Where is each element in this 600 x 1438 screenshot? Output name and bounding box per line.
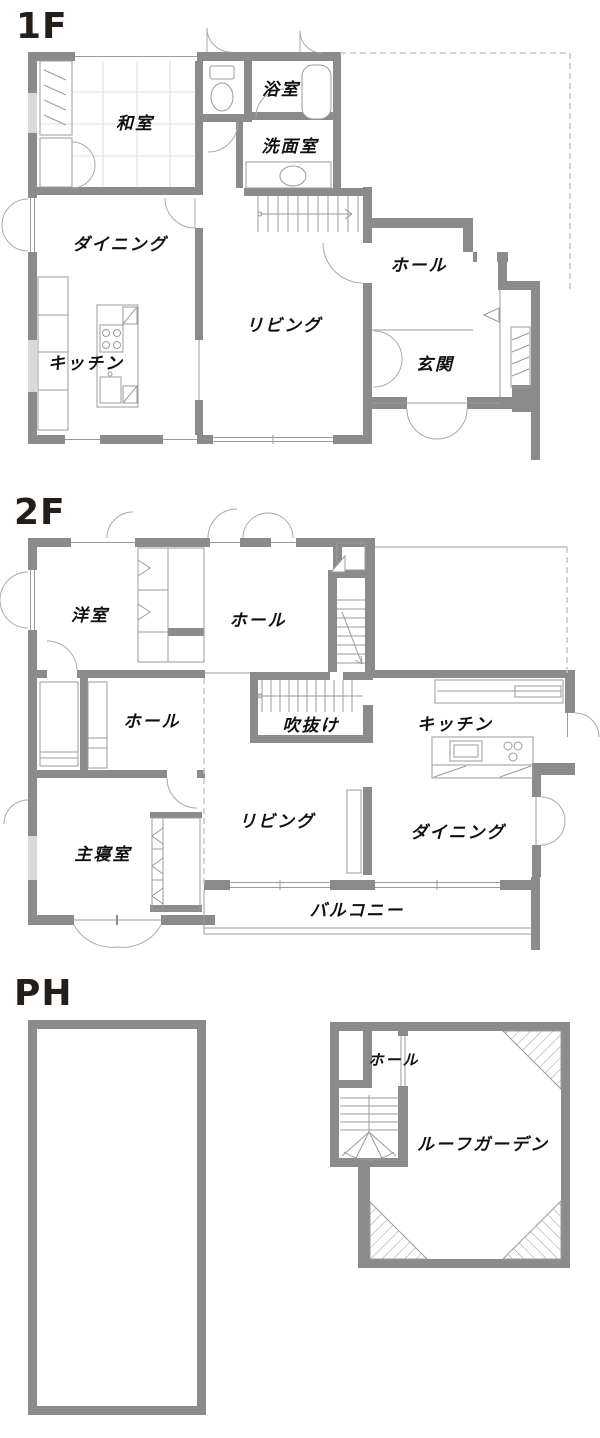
- walls-1f: [28, 52, 540, 460]
- room-label-washroom: 洗面室: [262, 137, 320, 157]
- room-label-hall-ph: ホール: [368, 1051, 419, 1069]
- room-label-dining-1f: ダイニング: [73, 235, 169, 255]
- room-label-dining-2f: ダイニング: [411, 823, 507, 843]
- room-label-youshitsu: 洋室: [71, 606, 110, 626]
- stairs-1f: [258, 196, 358, 232]
- room-label-roof-garden: ルーフガーデン: [417, 1135, 549, 1155]
- toilet: [210, 66, 234, 111]
- room-label-balcony: バルコニー: [310, 901, 405, 921]
- room-label-bathroom: 浴室: [262, 80, 301, 100]
- entry-arrow-marker: [484, 308, 499, 322]
- tv-board: [347, 790, 361, 873]
- void-stairwell: [258, 680, 363, 712]
- youshitsu-closet: [138, 548, 204, 662]
- floor-title-ph: PH: [14, 973, 73, 1014]
- bathtub: [302, 65, 331, 119]
- floor-plan-page: 1F: [0, 0, 600, 1438]
- stairs-ph: [340, 1095, 398, 1160]
- room-label-hall-upper: ホール: [230, 611, 287, 631]
- floor-title-2f: 2F: [14, 492, 66, 533]
- bedroom-closet: [152, 818, 200, 910]
- room-label-living-2f: リビング: [239, 812, 316, 832]
- room-label-entrance: 玄関: [416, 355, 455, 375]
- entrance-details: [372, 290, 530, 403]
- floor-1f-plan: 1F: [2, 6, 570, 460]
- room-label-kitchen-1f: キッチン: [48, 354, 124, 374]
- room-label-living-1f: リビング: [246, 316, 323, 336]
- room-label-kitchen-2f: キッチン: [417, 715, 493, 735]
- floor-2f-plan: 2F: [0, 492, 599, 950]
- room-label-void: 吹抜け: [283, 716, 340, 736]
- floor-ph-plan: PH: [14, 973, 570, 1415]
- room-label-hall-lower: ホール: [124, 712, 181, 732]
- hall-storage: [40, 682, 107, 768]
- dashed-upper-floor-outline: [340, 53, 570, 290]
- lower-roof-outline: [28, 1020, 206, 1415]
- room-label-hall-1f: ホール: [391, 256, 448, 276]
- washroom-vanity: [246, 162, 331, 188]
- room-label-washitsu: 和室: [116, 114, 155, 134]
- floor-title-1f: 1F: [16, 6, 68, 47]
- room-label-master-bedroom: 主寝室: [75, 845, 133, 865]
- floor-plan-drawing: 1F: [0, 0, 600, 1438]
